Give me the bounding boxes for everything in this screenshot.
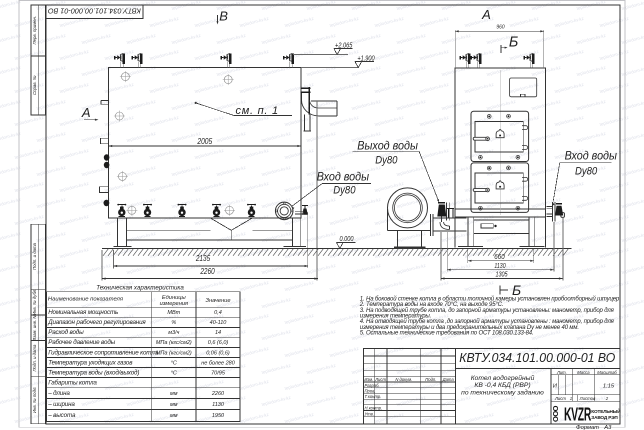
svg-text:70/95: 70/95	[211, 370, 226, 376]
svg-text:Лит.: Лит.	[556, 370, 567, 375]
svg-text:Перв. примен.: Перв. примен.	[32, 16, 37, 45]
svg-text:0,6 (6,0): 0,6 (6,0)	[208, 340, 229, 346]
svg-text:2260: 2260	[199, 266, 215, 276]
svg-text:– высота: – высота	[47, 412, 76, 419]
svg-text:1130: 1130	[494, 262, 506, 270]
svg-text:Подп. и дата: Подп. и дата	[32, 344, 37, 372]
svg-text:Пров.: Пров.	[365, 389, 376, 394]
svg-text:0,4: 0,4	[214, 310, 222, 316]
svg-text:40-110: 40-110	[210, 320, 228, 326]
svg-text:МВт: МВт	[167, 310, 180, 316]
svg-text:КВТУ.034.101.00.000-01 ВО: КВТУ.034.101.00.000-01 ВО	[48, 7, 141, 16]
svg-text:см. п. 1: см. п. 1	[235, 105, 278, 117]
svg-text:KVZR: KVZR	[564, 404, 591, 425]
svg-text:Гидравлическое сопротивление к: Гидравлическое сопротивление котла	[48, 349, 158, 356]
svg-text:ООО: ООО	[551, 405, 560, 422]
svg-text:Dy80: Dy80	[575, 166, 597, 178]
svg-text:°С: °С	[171, 360, 177, 366]
svg-text:мм: мм	[170, 391, 178, 397]
svg-text:мм: мм	[170, 402, 178, 408]
svg-text:Подп.: Подп.	[425, 377, 436, 382]
svg-text:Листов: Листов	[579, 396, 596, 401]
svg-text:Утв.: Утв.	[365, 411, 375, 416]
svg-text:Котел водогрейный: Котел водогрейный	[471, 374, 535, 382]
svg-text:Дата: Дата	[442, 377, 455, 382]
svg-text:КВТУ.034.101.00.000-01 ВО: КВТУ.034.101.00.000-01 ВО	[459, 351, 615, 365]
svg-text:Инв. № подл.: Инв. № подл.	[32, 386, 37, 413]
svg-text:мм: мм	[170, 413, 178, 419]
svg-text:1305: 1305	[495, 271, 508, 279]
svg-text:Расход воды: Расход воды	[48, 329, 84, 336]
svg-text:660: 660	[494, 254, 505, 262]
svg-text:Dy80: Dy80	[333, 185, 355, 197]
svg-text:Н.контр.: Н.контр.	[365, 406, 383, 411]
svg-text:Значение: Значение	[206, 298, 231, 304]
svg-text:2135: 2135	[195, 253, 211, 263]
svg-text:Б: Б	[512, 282, 521, 298]
svg-text:Вход воды: Вход воды	[565, 150, 618, 162]
svg-text:В: В	[219, 8, 228, 23]
svg-text:Диапазон рабочего регулировани: Диапазон рабочего регулирования	[47, 319, 146, 326]
svg-text:Формат: Формат	[576, 425, 599, 430]
svg-text:Температура воды (вход/выход): Температура воды (вход/выход)	[48, 369, 139, 376]
svg-text:960: 960	[496, 24, 504, 30]
svg-text:%: %	[171, 320, 176, 326]
svg-text:+1.900: +1.900	[357, 55, 375, 63]
svg-text:А: А	[481, 7, 491, 22]
svg-text:14: 14	[215, 330, 221, 336]
svg-text:Температура уходящих газов: Температура уходящих газов	[48, 359, 133, 366]
svg-text:Изм.: Изм.	[364, 377, 373, 382]
svg-text:Лист: Лист	[374, 377, 386, 382]
svg-text:5. Остальные технические треб: 5. Остальные технические требования по О…	[360, 330, 534, 336]
svg-text:КВ -0,4 КБД (РВР): КВ -0,4 КБД (РВР)	[474, 382, 530, 389]
svg-text:N докум.: N докум.	[395, 377, 412, 382]
svg-text:Рабочее давление воды: Рабочее давление воды	[48, 339, 115, 346]
svg-text:1950: 1950	[212, 413, 225, 419]
svg-text:Габариты котла: Габариты котла	[48, 379, 97, 386]
svg-text:Наименование показателя: Наименование показателя	[48, 297, 124, 303]
svg-text:МПа (кгс/см2): МПа (кгс/см2)	[156, 350, 192, 356]
svg-text:– ширина: – ширина	[47, 401, 75, 408]
svg-text:Разраб.: Разраб.	[365, 383, 380, 388]
svg-text:0.000: 0.000	[339, 236, 353, 244]
svg-text:по техническому заданию: по техническому заданию	[461, 389, 544, 397]
svg-text:+2.065: +2.065	[335, 42, 353, 50]
svg-text:Выход воды: Выход воды	[357, 140, 418, 152]
svg-text:Б: Б	[509, 34, 518, 50]
svg-text:Взам. инв. №: Взам. инв. №	[32, 314, 37, 341]
svg-text:Техническая характеристика: Техническая характеристика	[96, 284, 184, 291]
svg-text:Масштаб: Масштаб	[597, 370, 617, 375]
svg-text:°С: °С	[171, 370, 177, 376]
svg-text:Инв. № дубл.: Инв. № дубл.	[32, 289, 37, 315]
svg-text:Вход воды: Вход воды	[317, 171, 370, 183]
svg-text:– длина: – длина	[47, 390, 70, 397]
svg-text:2260: 2260	[211, 391, 225, 397]
svg-text:0,06 (0,6): 0,06 (0,6)	[206, 350, 230, 356]
svg-text:Dy80: Dy80	[375, 155, 397, 167]
svg-text:МПа (кгс/см2): МПа (кгс/см2)	[156, 340, 192, 346]
svg-text:А3: А3	[603, 425, 612, 430]
svg-text:Масса: Масса	[577, 370, 590, 375]
svg-text:Подп. и дата: Подп. и дата	[32, 242, 37, 270]
svg-text:2005: 2005	[196, 136, 212, 146]
svg-text:1:15: 1:15	[603, 384, 615, 390]
svg-text:А: А	[81, 105, 91, 120]
svg-text:измерения: измерения	[160, 301, 188, 307]
svg-text:м3/ч: м3/ч	[168, 330, 179, 336]
svg-text:Номинальная мощность: Номинальная мощность	[48, 309, 118, 316]
svg-text:Т.контр.: Т.контр.	[365, 394, 382, 399]
svg-text:ЗАВОД РЭП: ЗАВОД РЭП	[591, 415, 618, 420]
svg-text:не более 280: не более 280	[201, 360, 236, 366]
svg-text:Лист: Лист	[554, 396, 566, 401]
svg-text:КОТЕЛЬНЫЙ: КОТЕЛЬНЫЙ	[591, 407, 621, 414]
svg-text:1130: 1130	[212, 402, 225, 408]
svg-text:Справ. №: Справ. №	[32, 75, 37, 95]
